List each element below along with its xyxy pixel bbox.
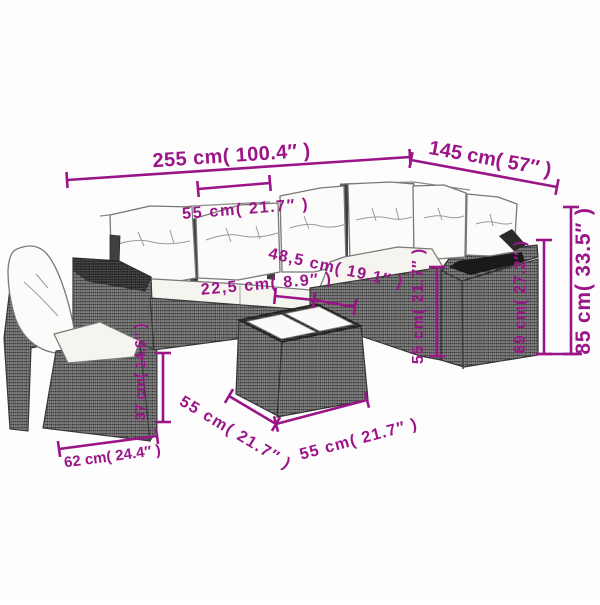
svg-text:37 cm( 14.6″ ): 37 cm( 14.6″ ) bbox=[132, 323, 149, 420]
svg-text:69 cm( 27.2″ ): 69 cm( 27.2″ ) bbox=[512, 240, 529, 354]
svg-text:85 cm( 33.5″ ): 85 cm( 33.5″ ) bbox=[572, 207, 595, 354]
svg-text:55 cm( 21.7″ ): 55 cm( 21.7″ ) bbox=[410, 248, 427, 364]
